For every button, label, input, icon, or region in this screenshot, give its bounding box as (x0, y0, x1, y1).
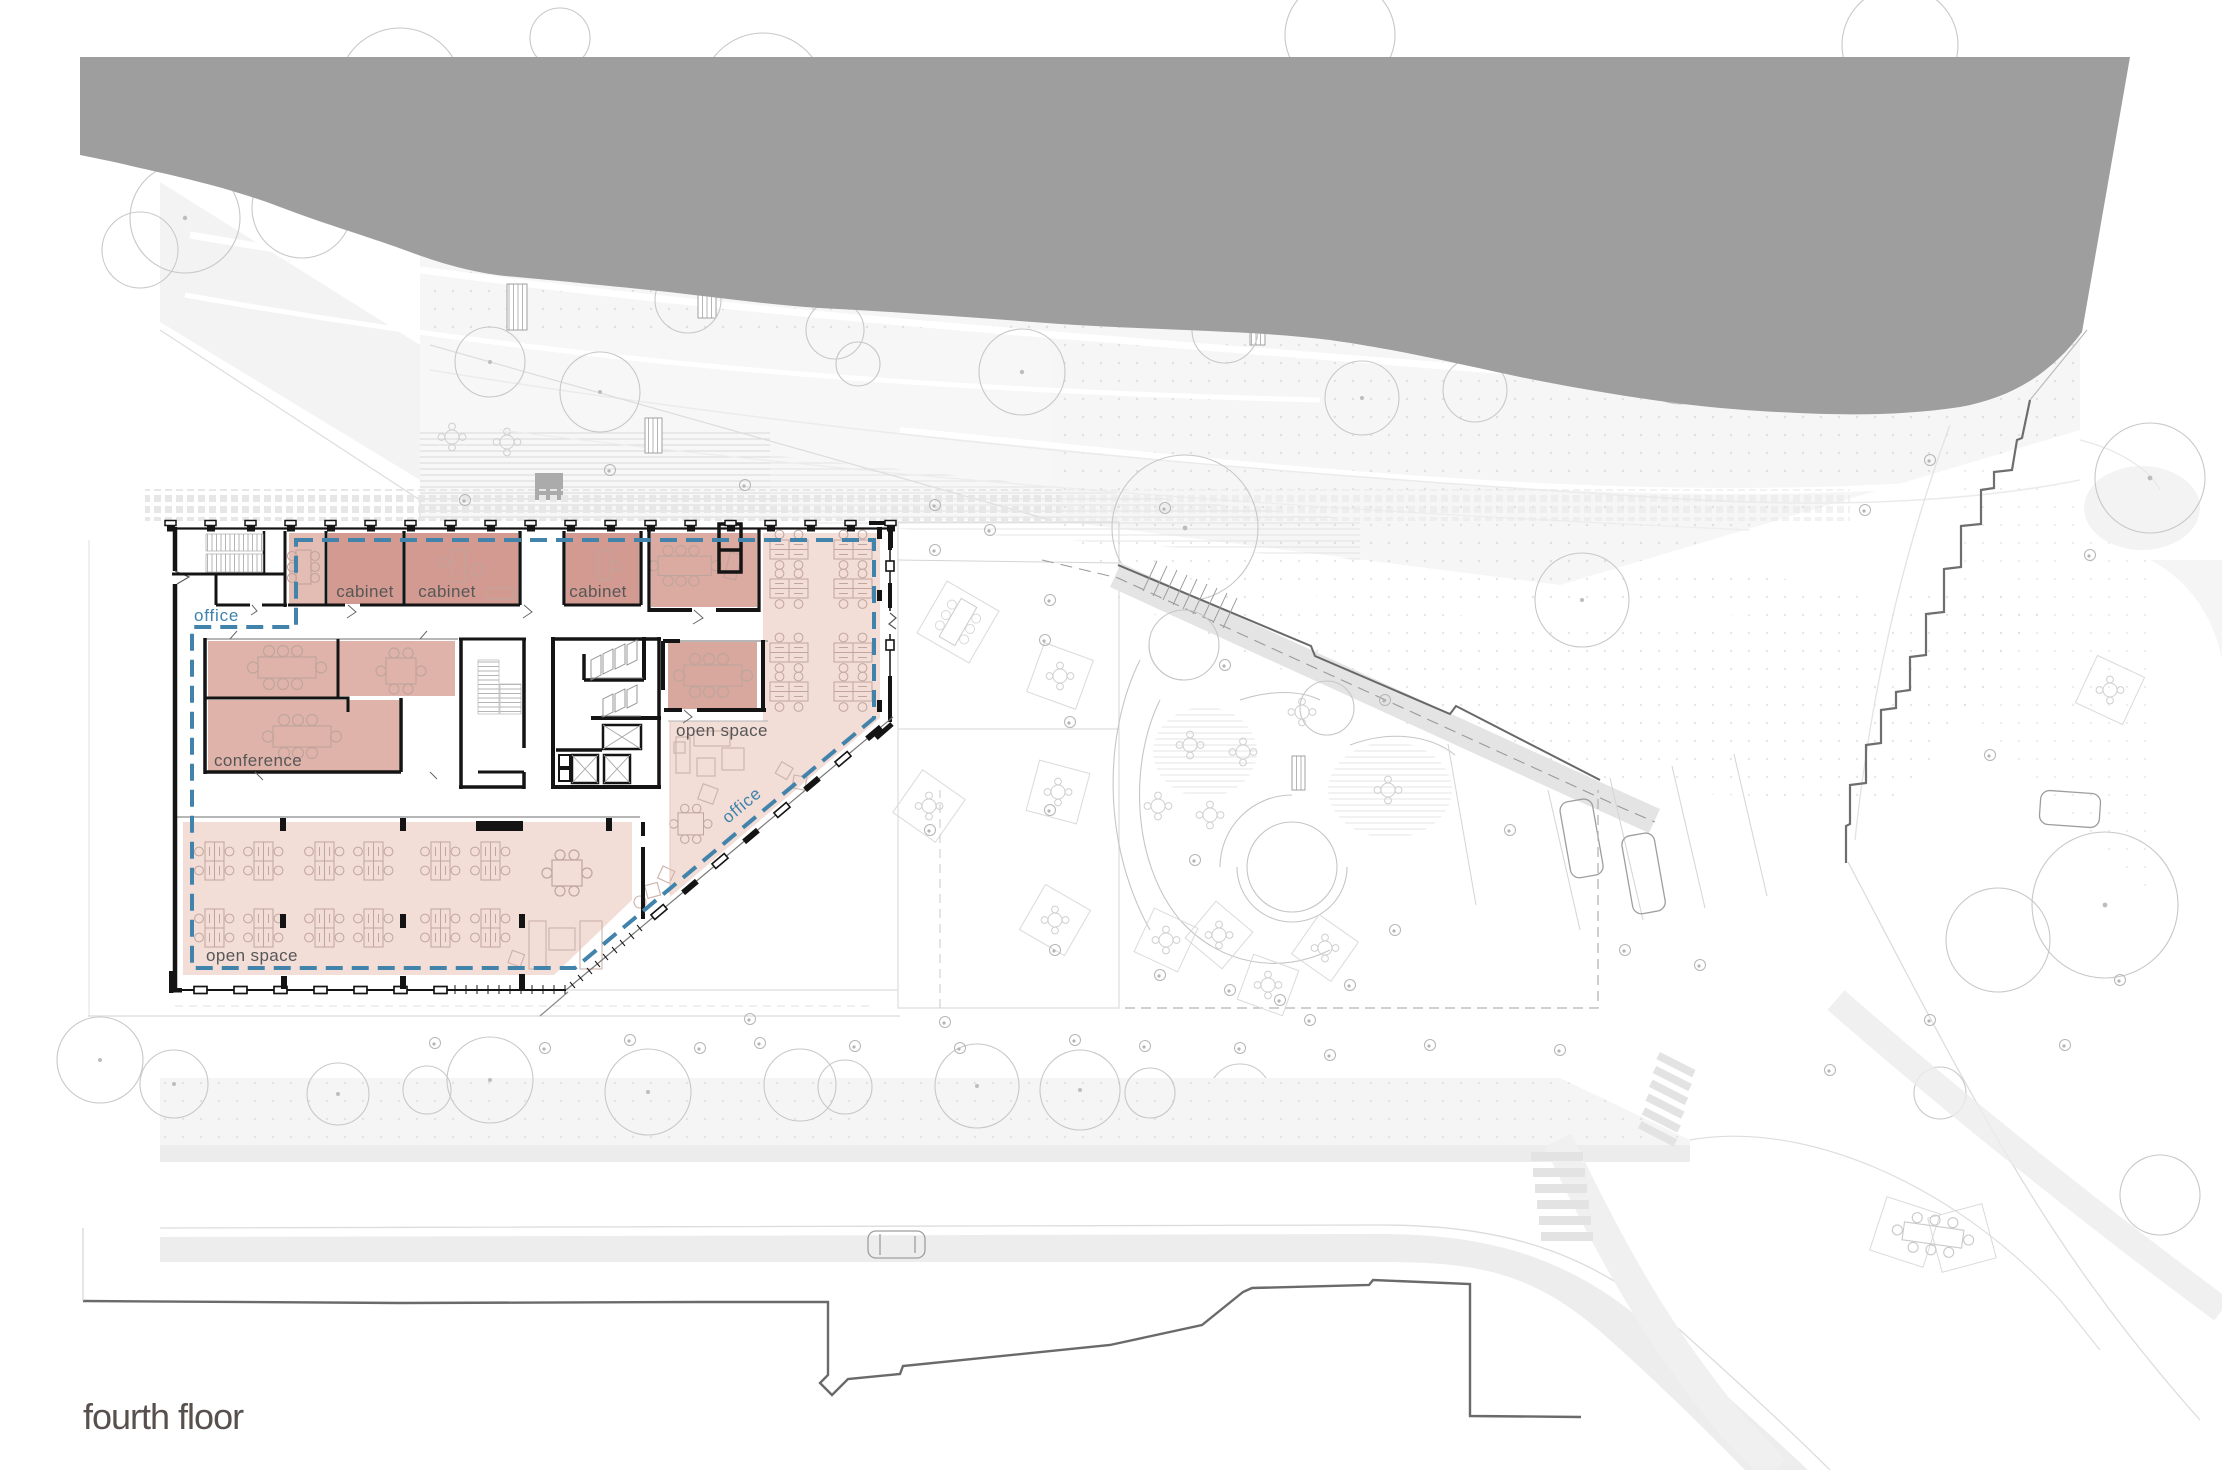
svg-text:cabinet: cabinet (569, 582, 627, 601)
svg-text:cabinet: cabinet (418, 582, 476, 601)
svg-text:office: office (194, 606, 239, 625)
svg-text:conference: conference (214, 751, 302, 770)
svg-text:cabinet: cabinet (336, 582, 394, 601)
svg-text:fourth floor: fourth floor (83, 1396, 244, 1437)
svg-text:open space: open space (676, 721, 768, 740)
svg-text:open space: open space (206, 946, 298, 965)
